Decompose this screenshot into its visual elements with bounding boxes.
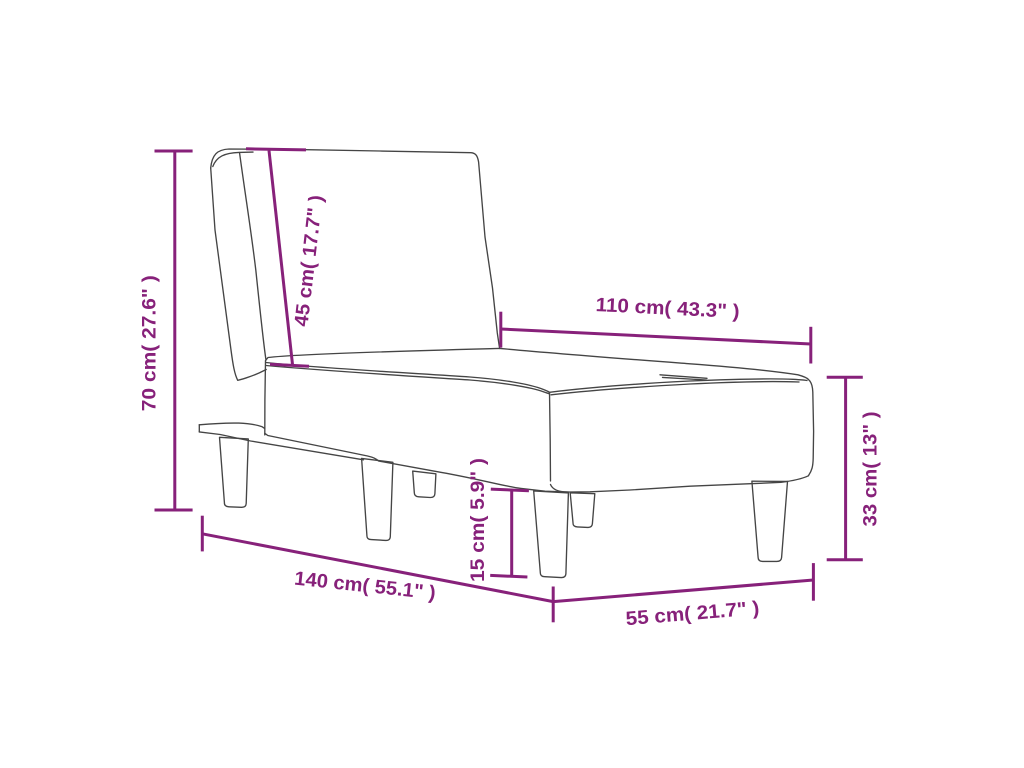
- svg-text:33 cm( 13" ): 33 cm( 13" ): [859, 412, 881, 527]
- svg-text:70 cm( 27.6" ): 70 cm( 27.6" ): [138, 275, 160, 411]
- svg-text:45 cm( 17.7" ): 45 cm( 17.7" ): [291, 194, 328, 328]
- svg-text:110 cm( 43.3" ): 110 cm( 43.3" ): [595, 294, 740, 323]
- svg-text:15 cm( 5.9" ): 15 cm( 5.9" ): [467, 458, 489, 582]
- svg-text:140 cm( 55.1" ): 140 cm( 55.1" ): [293, 568, 437, 605]
- svg-text:55 cm( 21.7" ): 55 cm( 21.7" ): [625, 597, 760, 630]
